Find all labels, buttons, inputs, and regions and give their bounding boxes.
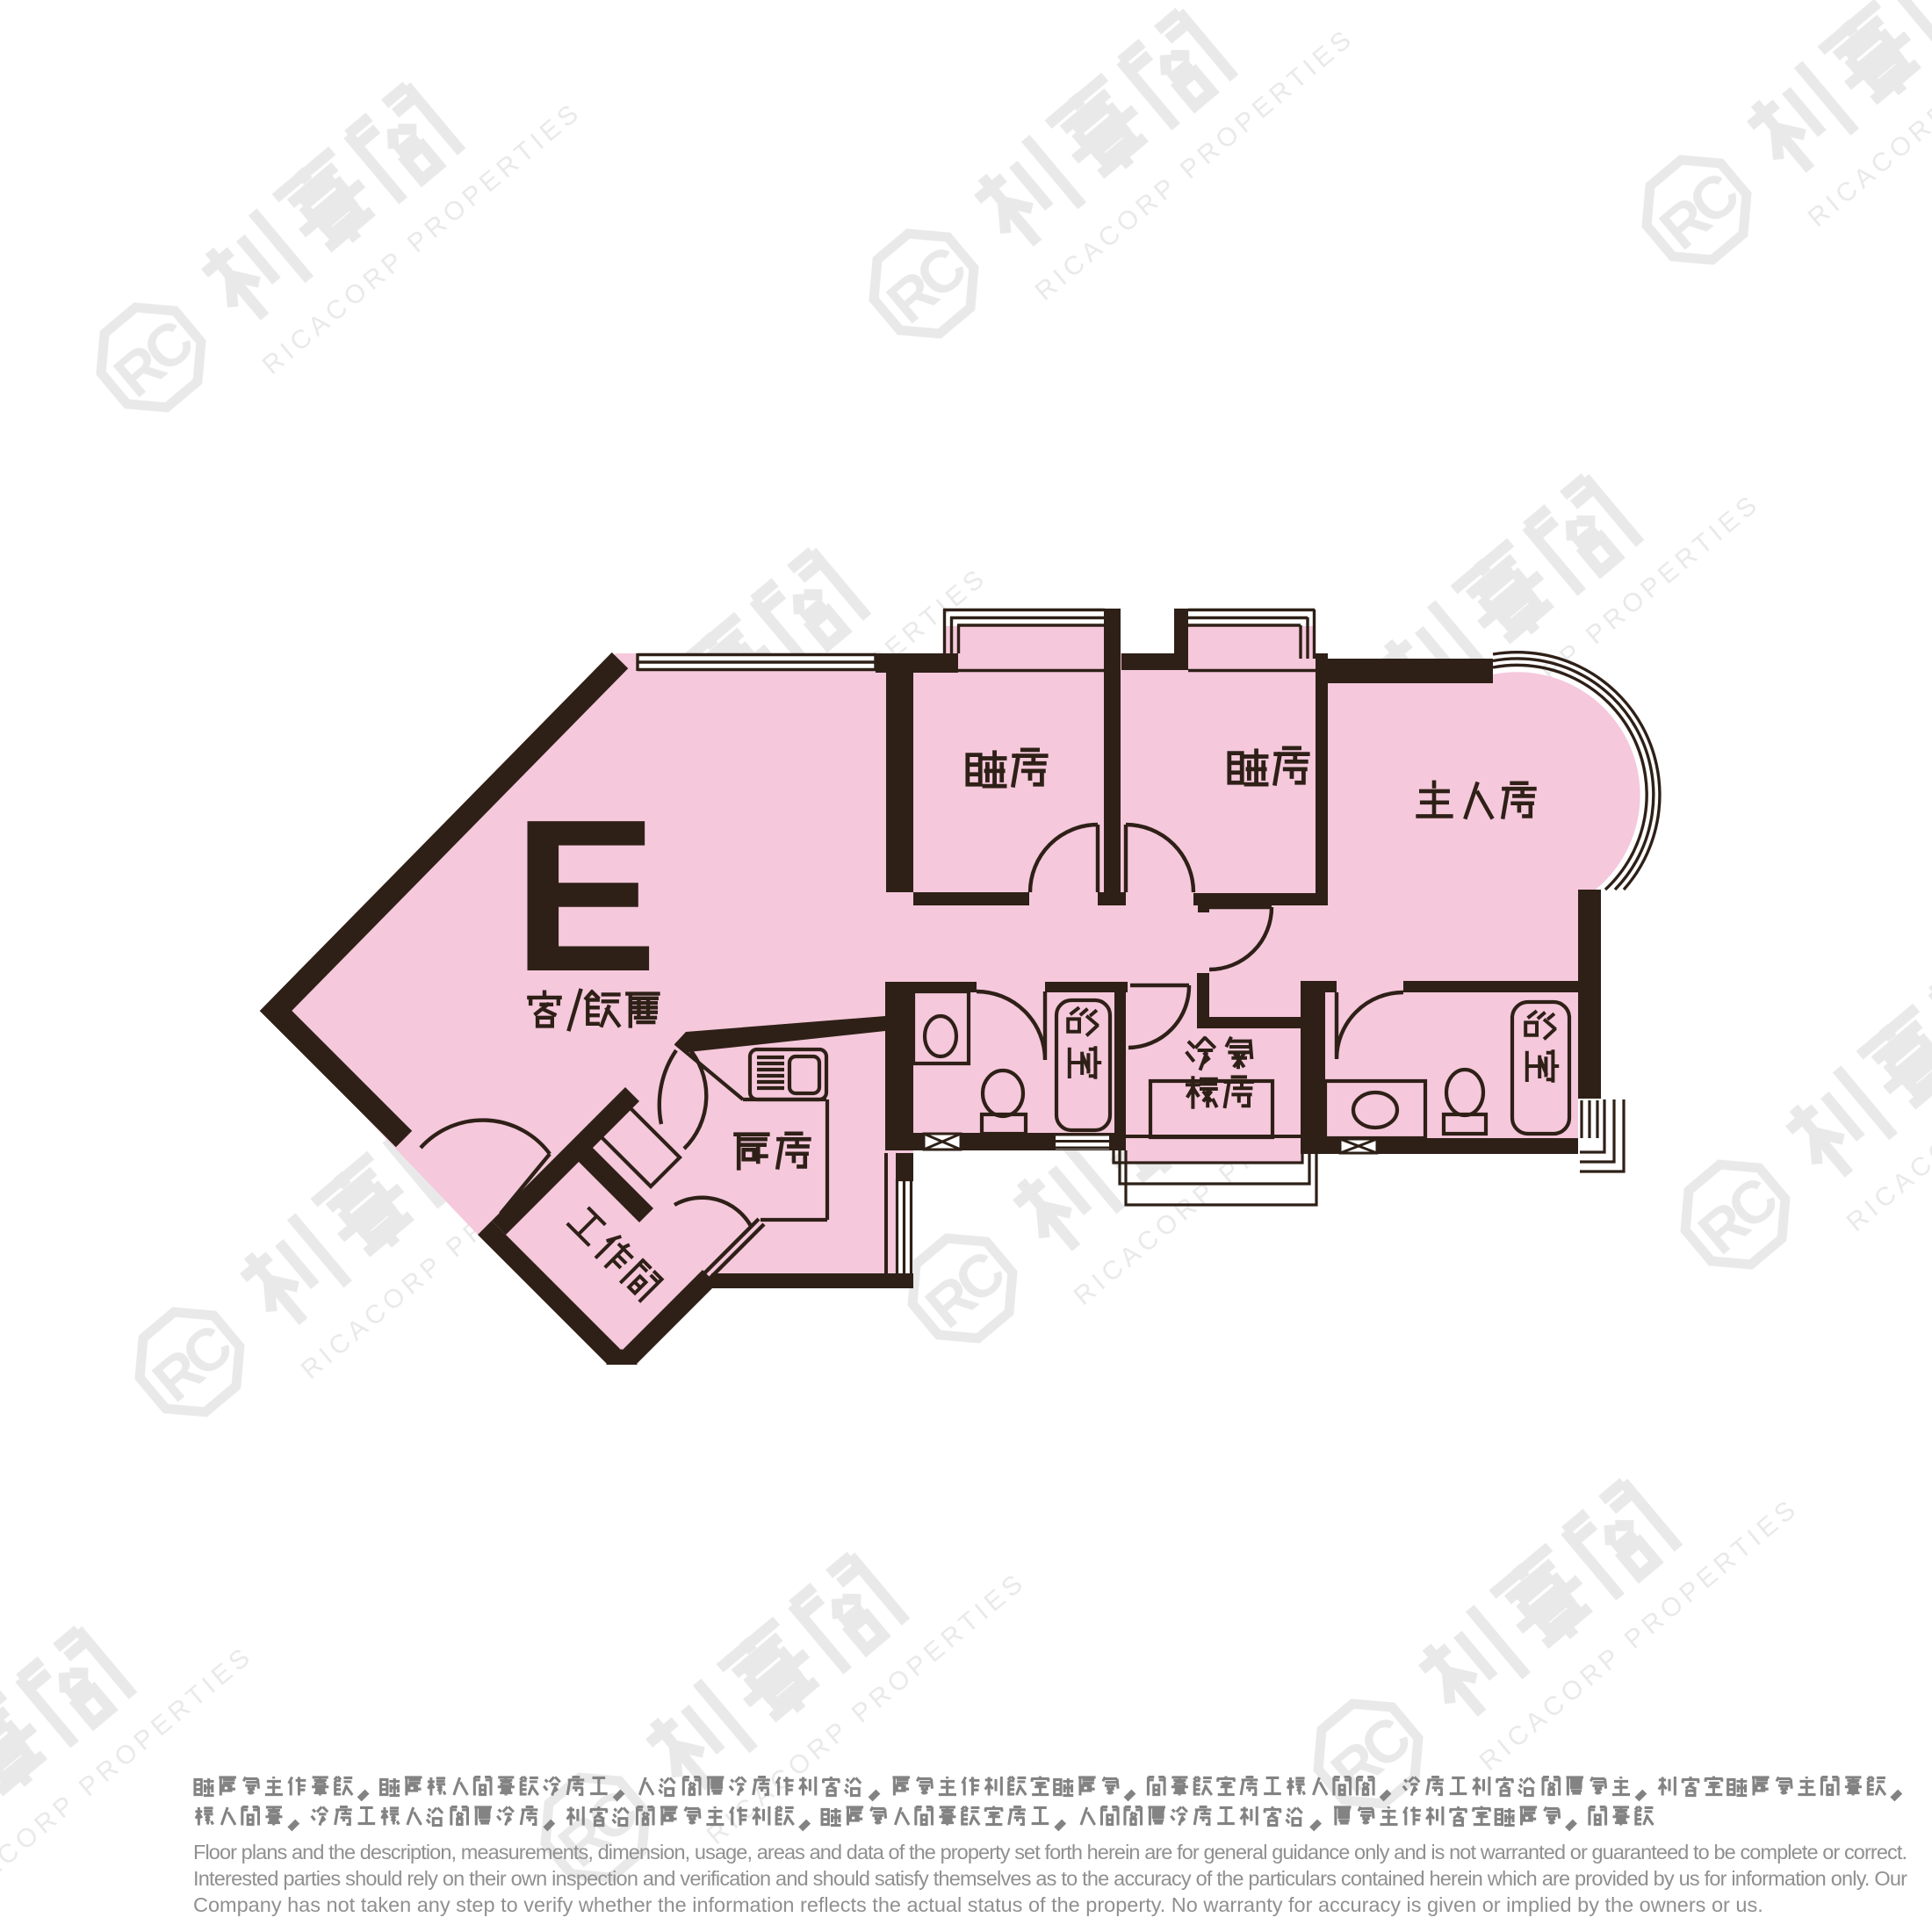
svg-text:Floor plans and the descriptio: Floor plans and the description, measure… [193,1841,1907,1864]
svg-text:E: E [513,775,658,1017]
svg-text:Company has not taken any step: Company has not taken any step to verify… [193,1893,1763,1916]
svg-text:Interested parties should rely: Interested parties should rely on their … [193,1867,1907,1890]
